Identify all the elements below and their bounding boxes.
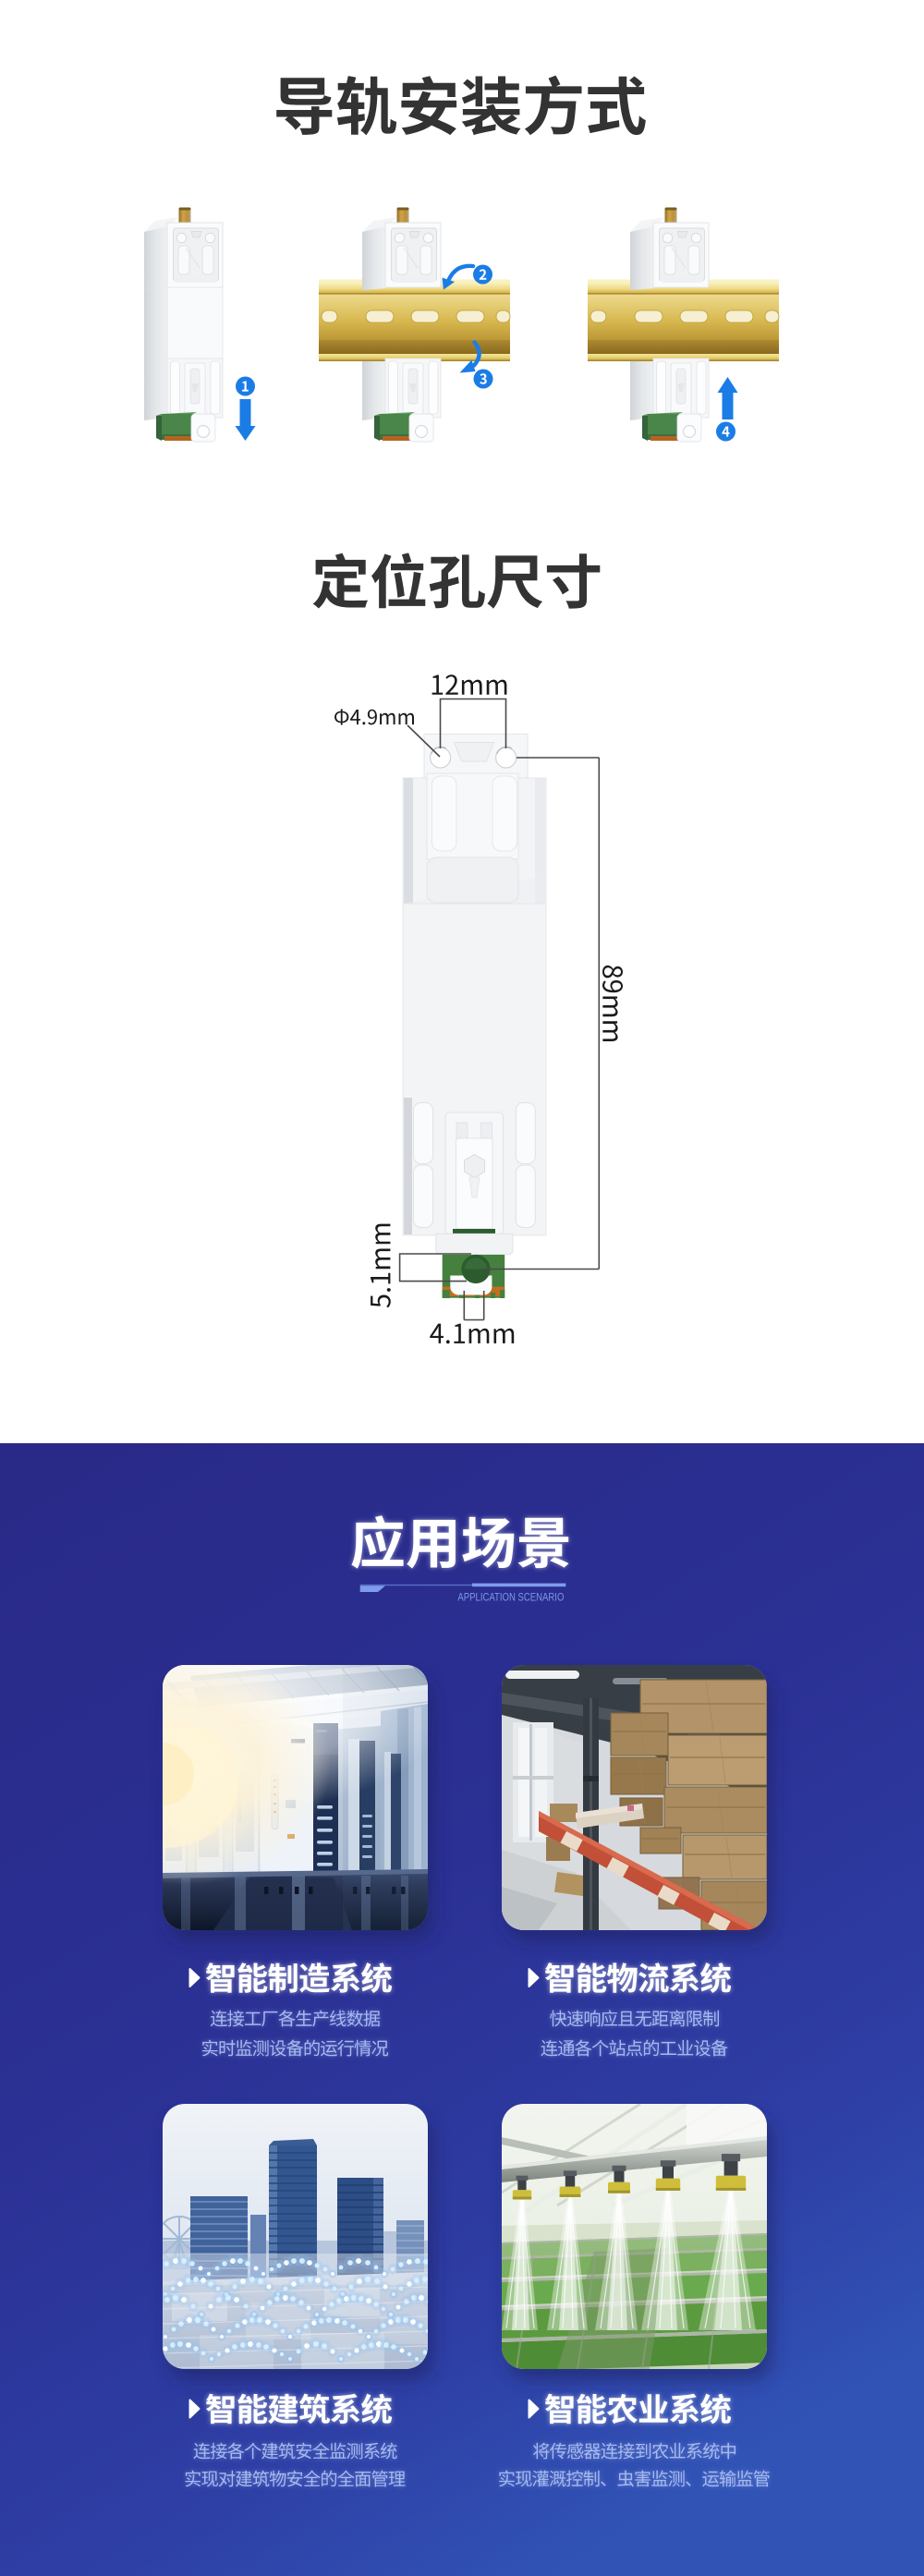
svg-text:APPLICATION SCENARIO: APPLICATION SCENARIO [457, 1591, 564, 1604]
